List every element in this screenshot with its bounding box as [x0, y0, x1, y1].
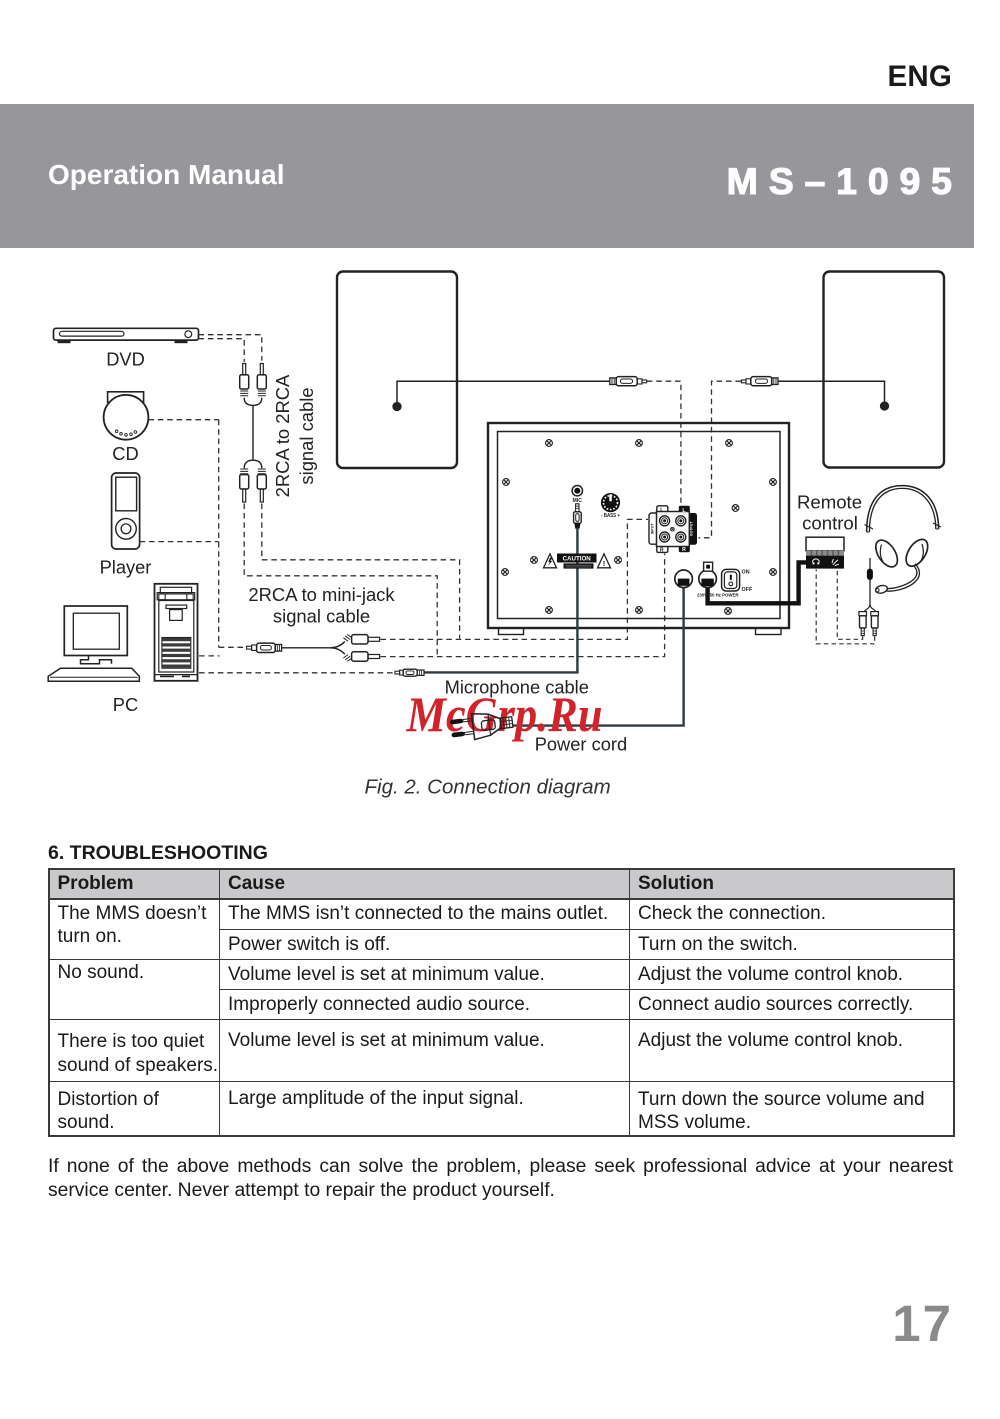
svg-text:OFF: OFF [742, 587, 753, 593]
svg-text:230V~50 Hz POWER: 230V~50 Hz POWER [697, 592, 739, 598]
svg-text:R: R [682, 547, 686, 553]
svg-text:Power cord: Power cord [535, 734, 627, 755]
svg-text:OUTPUT: OUTPUT [689, 521, 693, 537]
svg-text:R: R [660, 548, 664, 554]
svg-text:Remote: Remote [797, 492, 862, 513]
svg-text:Fig. 2. Connection diagram: Fig. 2. Connection diagram [365, 776, 611, 799]
svg-text:signal cable: signal cable [273, 606, 370, 627]
svg-text:CD: CD [112, 443, 138, 464]
svg-text:MIC: MIC [573, 498, 583, 504]
svg-text:CAUTION: CAUTION [563, 556, 592, 563]
svg-text:- BASS +: - BASS + [601, 513, 620, 519]
svg-text:ON: ON [742, 570, 750, 576]
svg-text:PC: PC [113, 694, 138, 715]
svg-text:control: control [802, 513, 858, 534]
svg-text:signal cable: signal cable [296, 387, 317, 484]
svg-text:Player: Player [100, 557, 152, 578]
svg-text:DVD: DVD [106, 349, 145, 370]
svg-text:INPUT: INPUT [651, 523, 655, 535]
svg-text:2RCA to 2RCA: 2RCA to 2RCA [272, 374, 293, 497]
svg-text:!: ! [603, 559, 606, 568]
svg-text:2RCA to mini-jack: 2RCA to mini-jack [248, 584, 395, 605]
